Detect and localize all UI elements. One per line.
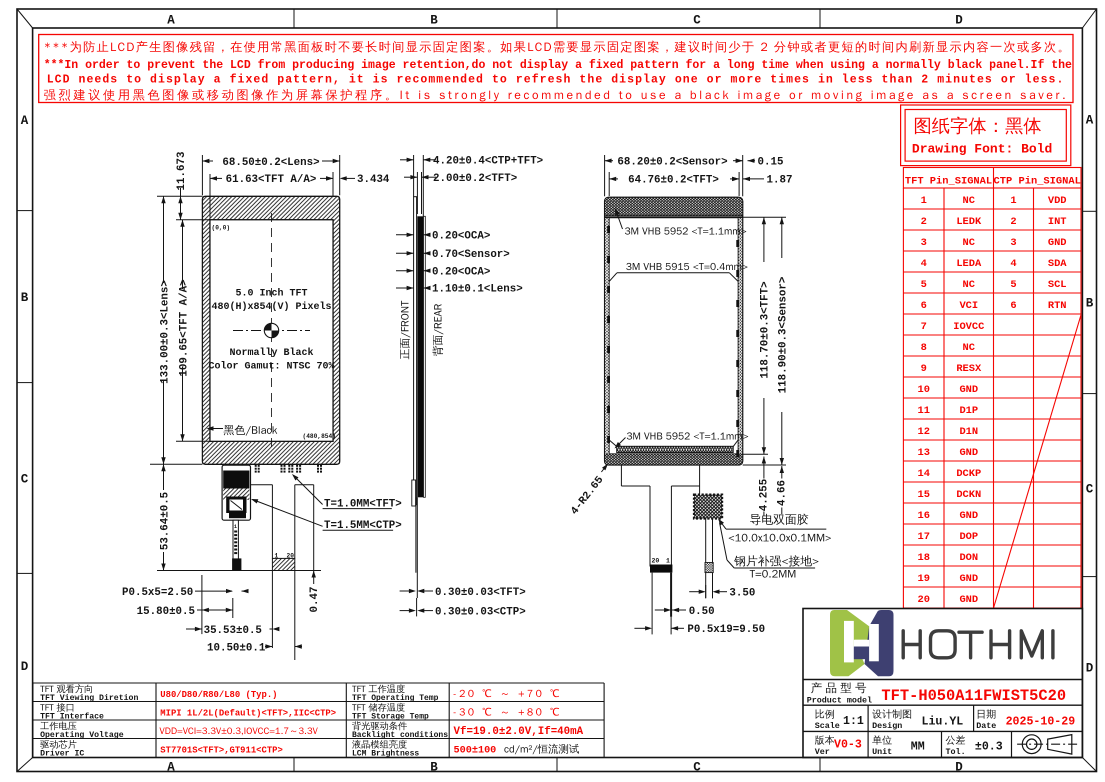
svg-text:P0.5x19=9.50: P0.5x19=9.50 (687, 624, 765, 636)
svg-text:B: B (21, 291, 29, 305)
svg-text:0.30±0.03<CTP>: 0.30±0.03<CTP> (435, 606, 526, 618)
svg-text:LCM Brightness: LCM Brightness (352, 749, 419, 758)
svg-text:17: 17 (917, 531, 929, 543)
svg-text:C: C (693, 760, 701, 774)
svg-text:A: A (21, 114, 29, 128)
svg-text:68.20±0.2<Sensor>: 68.20±0.2<Sensor> (617, 157, 727, 169)
svg-text:***In order to prevent the LCD: ***In order to prevent the LCD from prod… (44, 59, 1072, 72)
svg-text:11: 11 (917, 405, 929, 417)
svg-text:Design: Design (872, 721, 902, 731)
svg-text:INT: INT (1048, 216, 1067, 228)
svg-text:DOP: DOP (959, 531, 978, 543)
svg-text:6: 6 (921, 300, 927, 312)
svg-text:4.66: 4.66 (777, 480, 789, 506)
svg-text:0.47: 0.47 (309, 587, 321, 613)
svg-text:1: 1 (234, 524, 237, 530)
svg-text:0.30±0.03<TFT>: 0.30±0.03<TFT> (435, 587, 526, 599)
svg-text:Vf=19.0±2.0V,If=40mA: Vf=19.0±2.0V,If=40mA (454, 726, 584, 738)
svg-text:Tol.: Tol. (946, 747, 966, 757)
svg-text:18: 18 (917, 552, 929, 564)
svg-text:11.673: 11.673 (176, 152, 188, 191)
svg-text:1: 1 (921, 195, 927, 207)
svg-text:D: D (955, 760, 963, 774)
svg-text:61.63<TFT A/A>: 61.63<TFT A/A> (226, 174, 317, 186)
svg-text:LCD needs to display a fixed p: LCD needs to display a fixed pattern, it… (47, 74, 1065, 87)
svg-text:U80/D80/R80/L80 (Typ.): U80/D80/R80/L80 (Typ.) (160, 690, 277, 700)
svg-text:Product model: Product model (807, 695, 872, 705)
svg-text:NC: NC (963, 237, 975, 249)
svg-text:DON: DON (959, 552, 978, 564)
svg-text:9: 9 (921, 363, 927, 375)
svg-text:Backlight conditions: Backlight conditions (352, 731, 448, 740)
svg-text:GND: GND (959, 447, 978, 459)
svg-text:1.87: 1.87 (767, 175, 793, 187)
svg-text:C: C (1086, 483, 1094, 497)
svg-text:12: 12 (917, 426, 929, 438)
svg-text:(480,854): (480,854) (303, 433, 336, 440)
svg-text:SCL: SCL (1048, 279, 1067, 291)
svg-text:8: 8 (921, 342, 927, 354)
svg-text:16: 16 (917, 510, 929, 522)
svg-text:13: 13 (917, 447, 929, 459)
svg-text:LEDA: LEDA (956, 258, 982, 270)
svg-text:Drawing Font: Bold: Drawing Font: Bold (912, 142, 1052, 157)
svg-text:64.76±0.2<TFT>: 64.76±0.2<TFT> (628, 175, 719, 187)
svg-text:Ver: Ver (815, 747, 830, 757)
svg-text:14: 14 (917, 468, 929, 480)
svg-text:D: D (955, 14, 963, 28)
svg-text:Operating Voltage: Operating Voltage (40, 730, 124, 740)
svg-text:D1N: D1N (959, 426, 978, 438)
svg-text:IOVCC: IOVCC (953, 321, 984, 333)
svg-text:CTP Pin_SIGNAL: CTP Pin_SIGNAL (994, 175, 1081, 187)
svg-text:20: 20 (652, 557, 660, 564)
svg-text:B: B (1086, 297, 1094, 311)
svg-text:118.90±0.3<Sensor>: 118.90±0.3<Sensor> (778, 277, 790, 394)
svg-text:B: B (430, 14, 438, 28)
svg-text:Driver IC: Driver IC (40, 748, 84, 758)
svg-text:118.70±0.3<TFT>: 118.70±0.3<TFT> (760, 281, 772, 378)
svg-text:5: 5 (921, 279, 927, 291)
svg-text:Unit: Unit (872, 747, 892, 757)
svg-text:15.80±0.5: 15.80±0.5 (137, 606, 195, 618)
svg-text:GND: GND (959, 573, 978, 585)
svg-text:1: 1 (1010, 195, 1016, 207)
svg-text:3.50: 3.50 (729, 588, 755, 600)
svg-text:10.50±0.1: 10.50±0.1 (207, 642, 266, 654)
svg-text:TFT Pin_SIGNAL: TFT Pin_SIGNAL (905, 175, 992, 187)
svg-text:GND: GND (1048, 237, 1067, 249)
svg-text:5: 5 (1010, 279, 1016, 291)
svg-text:2025-10-29: 2025-10-29 (1006, 715, 1076, 728)
svg-text:2.00±0.2<TFT>: 2.00±0.2<TFT> (433, 173, 517, 185)
svg-text:1.10±0.1<Lens>: 1.10±0.1<Lens> (432, 284, 523, 296)
svg-text:Color Gamut: NTSC 70%: Color Gamut: NTSC 70% (208, 361, 334, 373)
svg-text:V0-3: V0-3 (834, 739, 862, 752)
svg-text:6: 6 (1010, 300, 1016, 312)
svg-text:B: B (430, 760, 438, 774)
svg-text:SDA: SDA (1048, 258, 1067, 270)
svg-text:0.50: 0.50 (689, 606, 715, 618)
svg-text:10: 10 (917, 384, 929, 396)
svg-text:35.53±0.5: 35.53±0.5 (204, 625, 262, 637)
svg-text:A: A (167, 760, 175, 774)
svg-text:4.255: 4.255 (759, 479, 771, 511)
svg-text:VCI: VCI (959, 300, 978, 312)
svg-text:53.64±0.5: 53.64±0.5 (159, 492, 171, 550)
svg-text:2: 2 (921, 216, 927, 228)
svg-text:Scale: Scale (815, 721, 840, 731)
svg-text:1:1: 1:1 (843, 715, 864, 728)
svg-text:Liu.YL: Liu.YL (922, 715, 964, 728)
svg-text:0.20<OCA>: 0.20<OCA> (432, 266, 490, 278)
svg-text:500±100: 500±100 (454, 746, 497, 757)
svg-text:5.0 Inch TFT: 5.0 Inch TFT (235, 288, 307, 300)
svg-text:7: 7 (921, 321, 927, 333)
svg-text:15: 15 (917, 489, 929, 501)
svg-text:Date: Date (976, 721, 996, 731)
svg-text:DCKP: DCKP (956, 468, 981, 480)
svg-text:A: A (1086, 114, 1094, 128)
svg-text:GND: GND (959, 384, 978, 396)
svg-text:(0,0): (0,0) (212, 225, 231, 232)
svg-text:TFT Operating Temp: TFT Operating Temp (352, 694, 439, 703)
svg-text:TFT Storage Temp: TFT Storage Temp (352, 712, 429, 721)
svg-text:3.434: 3.434 (357, 174, 390, 186)
svg-text:P0.5x5=2.50: P0.5x5=2.50 (122, 587, 193, 599)
svg-text:LEDK: LEDK (956, 216, 982, 228)
svg-text:2: 2 (1010, 216, 1016, 228)
svg-text:D1P: D1P (959, 405, 978, 417)
svg-text:0.15: 0.15 (758, 157, 784, 169)
svg-text:20: 20 (917, 594, 929, 606)
svg-text:NC: NC (963, 195, 975, 207)
svg-text:C: C (21, 473, 29, 487)
svg-text:TFT-H050A11FWIST5C20: TFT-H050A11FWIST5C20 (881, 687, 1066, 705)
svg-text:A: A (167, 14, 175, 28)
svg-text:C: C (693, 14, 701, 28)
svg-text:T=1.5MM<CTP>: T=1.5MM<CTP> (324, 520, 402, 532)
svg-text:D: D (21, 660, 29, 674)
svg-text:0.70<Sensor>: 0.70<Sensor> (432, 249, 510, 261)
svg-text:Normally Black: Normally Black (229, 347, 313, 359)
svg-text:4: 4 (1010, 258, 1016, 270)
svg-text:D: D (1086, 662, 1094, 676)
svg-text:MM: MM (911, 741, 925, 754)
svg-text:T=1.0MM<TFT>: T=1.0MM<TFT> (324, 498, 402, 510)
svg-text:±0.3: ±0.3 (975, 741, 1003, 754)
svg-text:109.65<TFT A/A>: 109.65<TFT A/A> (178, 279, 190, 376)
svg-text:3: 3 (1010, 237, 1016, 249)
svg-text:GND: GND (959, 594, 978, 606)
svg-text:68.50±0.2<Lens>: 68.50±0.2<Lens> (222, 157, 319, 169)
svg-text:GND: GND (959, 510, 978, 522)
svg-text:NC: NC (963, 342, 975, 354)
svg-text:4: 4 (921, 258, 927, 270)
svg-text:TFT Interface: TFT Interface (40, 711, 104, 721)
svg-text:TFT Viewing Diretion: TFT Viewing Diretion (40, 693, 138, 703)
svg-text:19: 19 (917, 573, 929, 585)
svg-text:NC: NC (963, 279, 975, 291)
svg-text:DCKN: DCKN (956, 489, 981, 501)
svg-text:VDD: VDD (1048, 195, 1067, 207)
svg-text:480(H)x854(V) Pixels: 480(H)x854(V) Pixels (211, 301, 331, 313)
svg-text:ST7701S<TFT>,GT911<CTP>: ST7701S<TFT>,GT911<CTP> (160, 746, 282, 756)
svg-text:0.20<OCA>: 0.20<OCA> (432, 230, 490, 242)
svg-text:1: 1 (666, 557, 670, 564)
svg-text:MIPI 1L/2L(Default)<TFT>,IIC<C: MIPI 1L/2L(Default)<TFT>,IIC<CTP> (160, 709, 336, 719)
svg-text:RESX: RESX (956, 363, 982, 375)
svg-text:133.00±0.3<Lens>: 133.00±0.3<Lens> (159, 280, 171, 384)
svg-text:RTN: RTN (1048, 300, 1067, 312)
svg-text:3: 3 (921, 237, 927, 249)
svg-text:4.20±0.4<CTP+TFT>: 4.20±0.4<CTP+TFT> (433, 156, 543, 168)
